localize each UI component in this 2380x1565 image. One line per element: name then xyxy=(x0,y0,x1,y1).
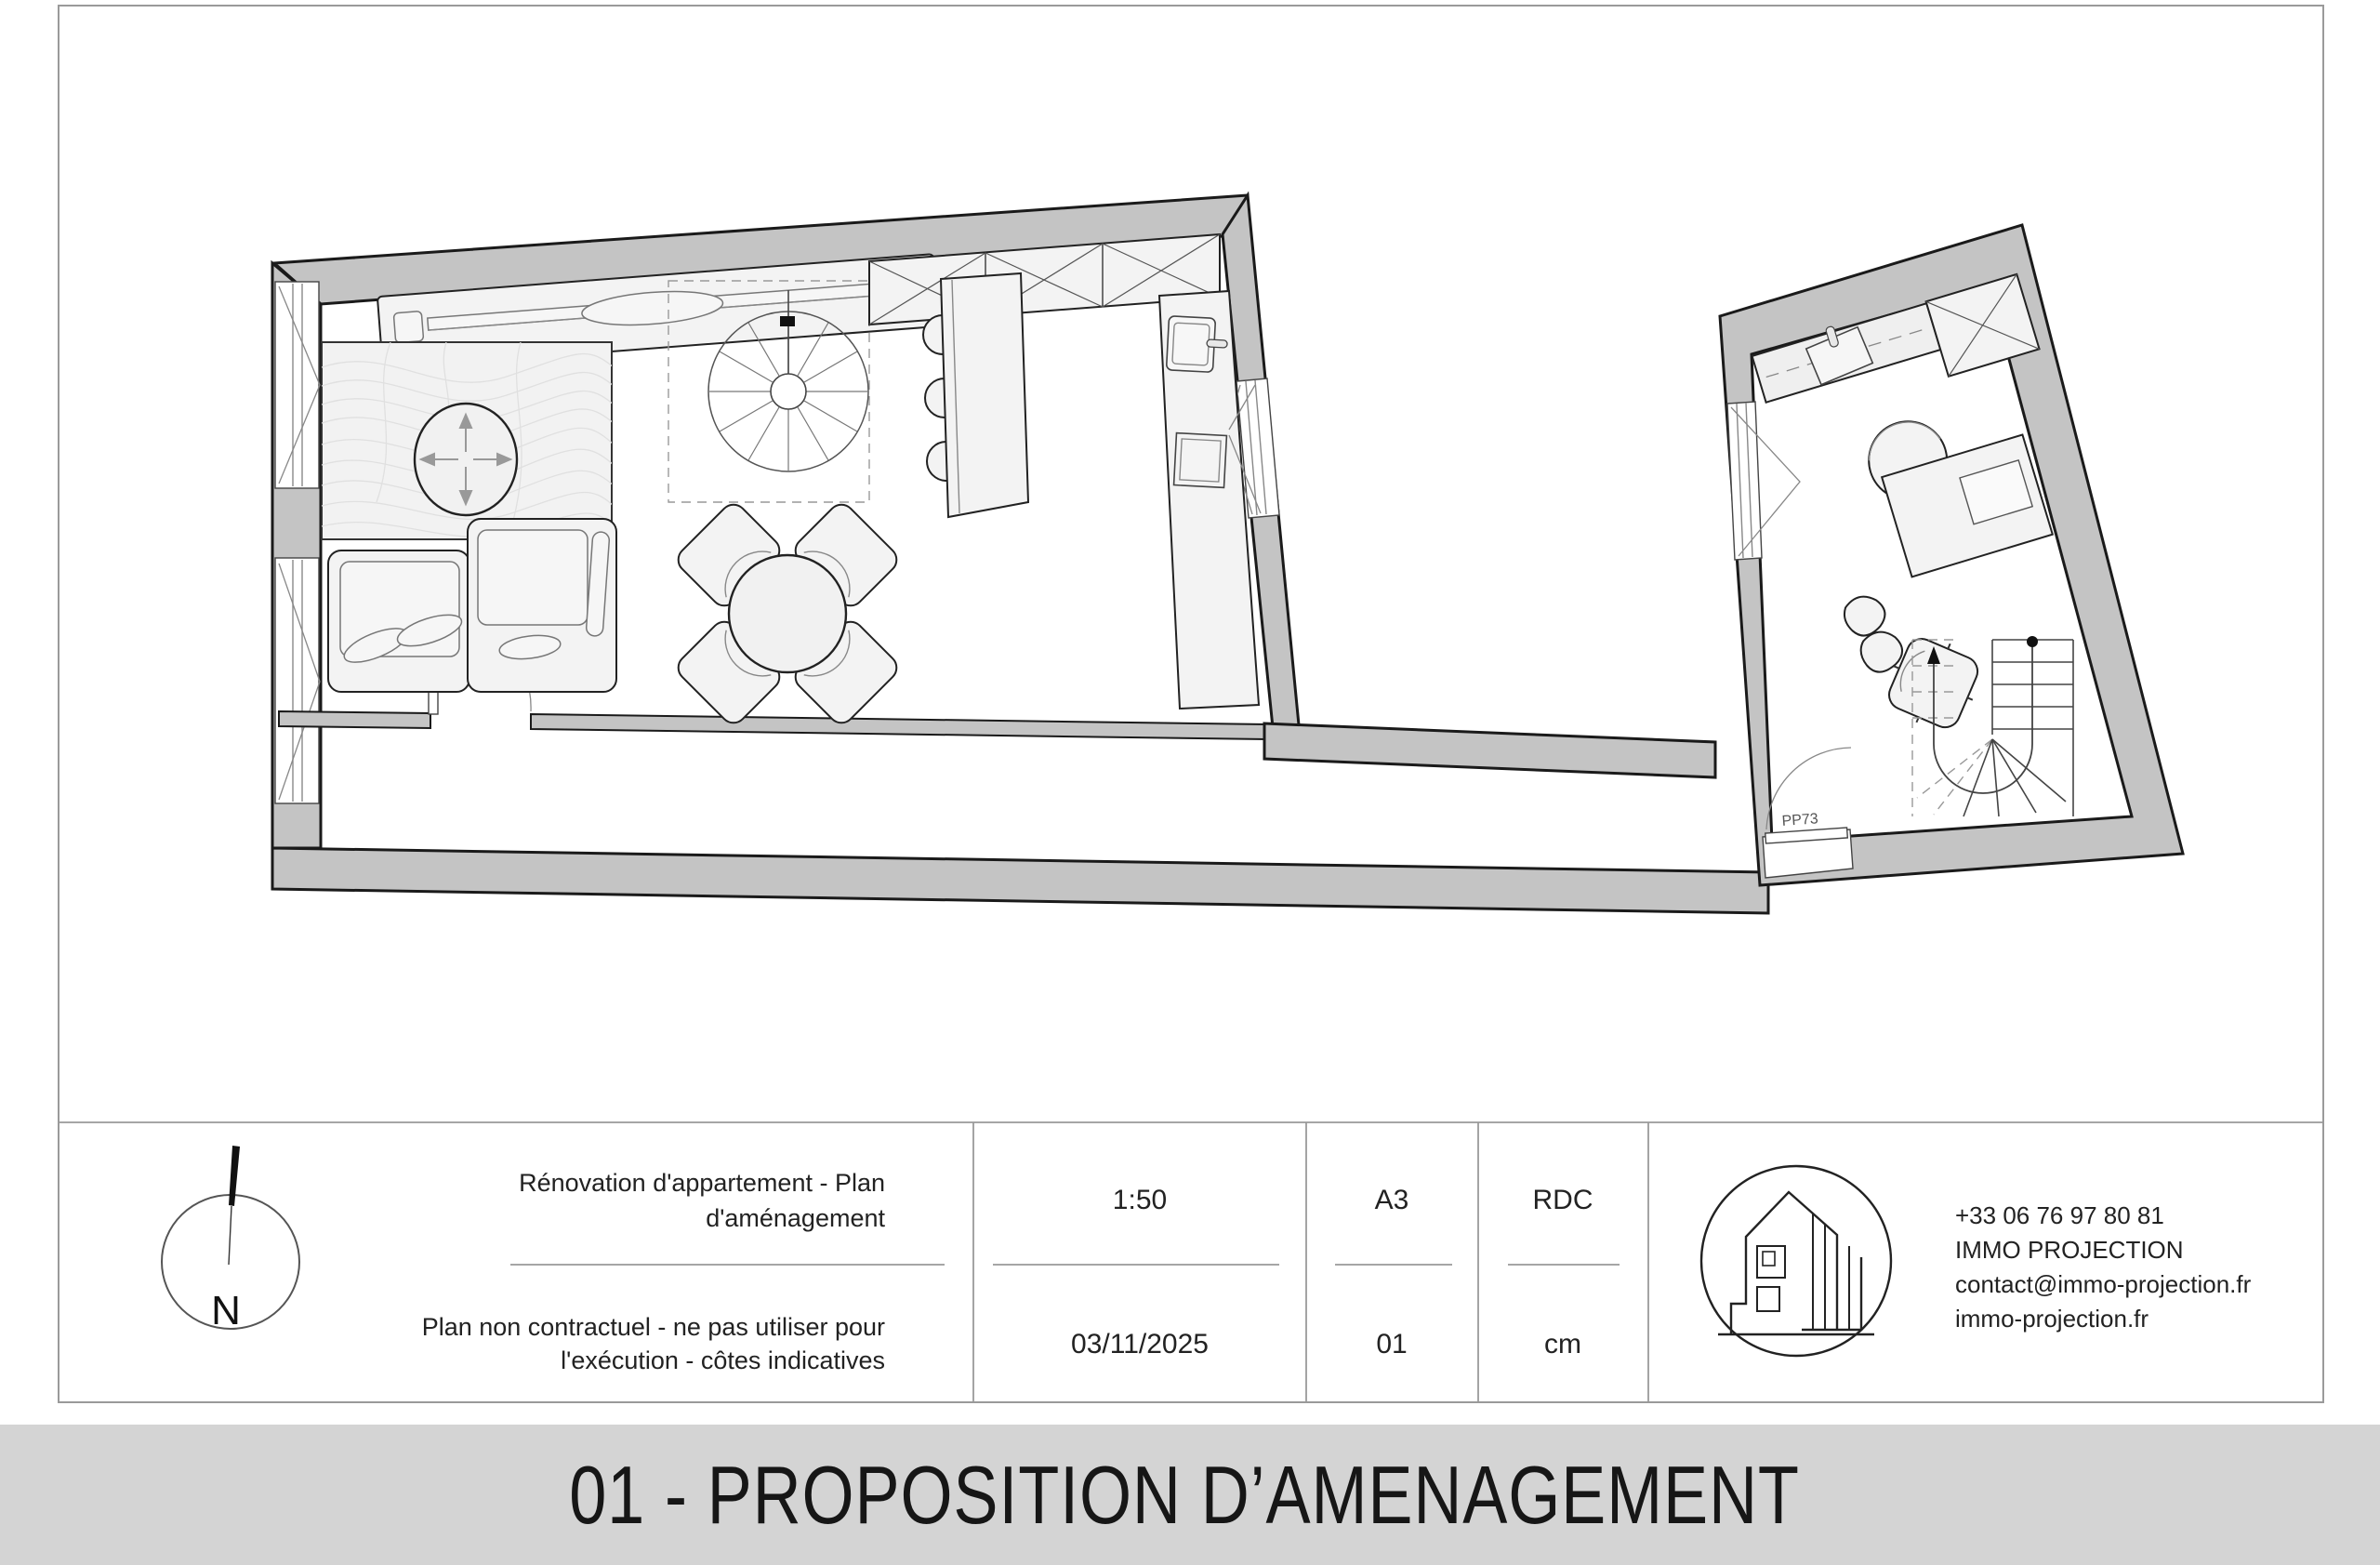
scale-value: 1:50 xyxy=(1113,1185,1167,1215)
coffee-table xyxy=(415,404,517,515)
project-title-line1: Rénovation d'appartement - Plan xyxy=(519,1169,885,1197)
banner: 01 - PROPOSITION D’AMENAGEMENT xyxy=(0,1425,2380,1565)
u-staircase xyxy=(1912,636,2073,816)
wall-corridor-south xyxy=(272,848,1768,913)
banner-title: 01 - PROPOSITION D’AMENAGEMENT xyxy=(569,1450,1800,1541)
door-entrance-pp73: PP73 xyxy=(1763,748,1853,878)
north-compass: N xyxy=(162,1146,299,1333)
stair-marker xyxy=(780,316,795,326)
level-value: RDC xyxy=(1533,1185,1593,1215)
company-email: contact@immo-projection.fr xyxy=(1955,1270,2252,1298)
compass-needle xyxy=(229,1146,240,1206)
date-value: 03/11/2025 xyxy=(1071,1329,1209,1359)
sofa xyxy=(328,519,616,692)
company-logo-icon xyxy=(1701,1166,1891,1356)
company-website: immo-projection.fr xyxy=(1955,1305,2149,1333)
kitchen-hob xyxy=(1174,433,1227,488)
drawing-sheet: PP73 xyxy=(0,0,2380,1565)
poufs xyxy=(1840,590,1907,678)
dining-table xyxy=(729,555,846,672)
units-value: cm xyxy=(1544,1329,1581,1359)
disclaimer-line2: l'exécution - côtes indicatives xyxy=(561,1346,885,1374)
wall-living-south-a xyxy=(279,711,430,728)
window-right-room xyxy=(1727,402,1800,560)
floor-plan-sheet: PP73 xyxy=(0,0,2380,1565)
window-west-1 xyxy=(275,282,320,488)
door-label: PP73 xyxy=(1781,811,1818,829)
disclaimer-line1: Plan non contractuel - ne pas utiliser p… xyxy=(422,1313,885,1341)
floor-plan: PP73 xyxy=(272,195,2183,913)
sheet-number: 01 xyxy=(1376,1329,1407,1359)
dining-set xyxy=(673,499,902,728)
window-west-2 xyxy=(275,558,320,803)
paper-size: A3 xyxy=(1375,1185,1409,1215)
north-label: N xyxy=(211,1288,241,1333)
wall-courtyard-south xyxy=(1264,723,1715,777)
project-title-line2: d'aménagement xyxy=(706,1204,885,1232)
company-phone: +33 06 76 97 80 81 xyxy=(1955,1201,2164,1229)
title-block: N Rénovation d'appartement - Plan d'amén… xyxy=(59,1122,2323,1402)
company-name: IMMO PROJECTION xyxy=(1955,1236,2184,1264)
wall-living-south-b xyxy=(531,714,1267,739)
